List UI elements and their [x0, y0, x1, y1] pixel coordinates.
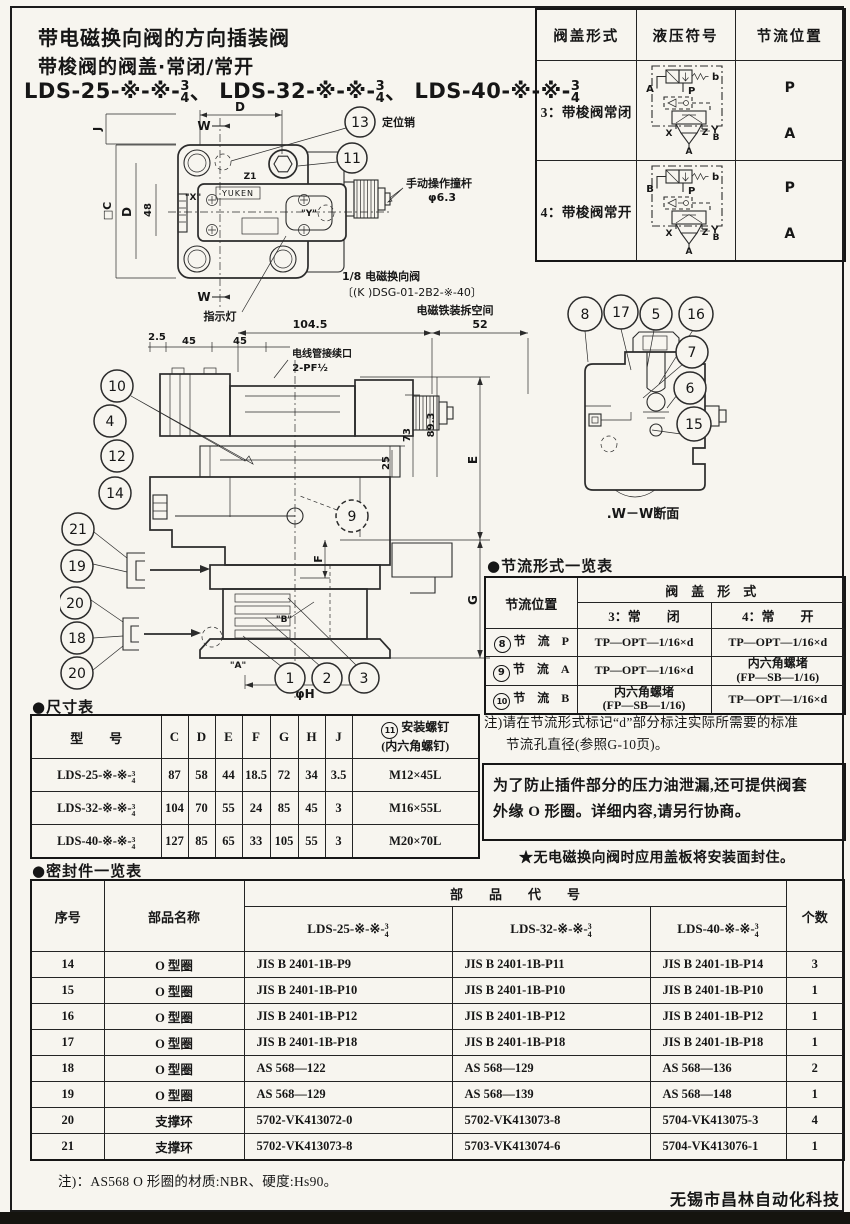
- dims-header-j: J: [325, 715, 352, 759]
- seal-header-qty: 个数: [786, 880, 844, 952]
- val-c: 127: [161, 825, 188, 859]
- plan-view-drawing: YUKEN "X" "Y" Z1 D J □C D: [90, 100, 540, 328]
- val-f: 18.5: [242, 759, 270, 792]
- seal-no: 15: [31, 978, 104, 1004]
- callout-14: 14: [106, 486, 124, 502]
- pin-label: 定位销: [382, 115, 415, 129]
- callout-3: 3: [360, 671, 369, 687]
- dims-row-lds40: LDS-40-※-※-34 127 85 65 33 105 55 3 M20×…: [31, 825, 479, 859]
- solenoid-space-label: 电磁铁装拆空间: [417, 303, 494, 317]
- dim-89-3: 89.3: [426, 413, 437, 438]
- throttle-row-a: 9节 流 A TP—OPT—1/16×d 内六角螺堵(FP—SB—1/16): [485, 657, 845, 686]
- val-d: 70: [188, 792, 215, 825]
- dims-header-e: E: [215, 715, 242, 759]
- seal-no: 14: [31, 952, 104, 978]
- throttle-row-p-label: 节 流 P: [514, 634, 569, 648]
- val-h: 45: [298, 792, 325, 825]
- callout-20: 20: [66, 596, 84, 612]
- seal-header-model-25: LDS-25-※-※-34: [244, 907, 452, 952]
- seal-table-label: ●密封件一览表: [32, 860, 142, 881]
- throttle-note-line1: 注)请在节流形式标记“d”部分标注实际所需要的标准: [484, 711, 844, 731]
- cell-line2: (FP—SB—1/16): [712, 671, 845, 685]
- throttle-row-p: 8节 流 P TP—OPT—1/16×d TP—OPT—1/16×d: [485, 629, 845, 657]
- seal-name: 支撑环: [104, 1108, 244, 1134]
- star-note: ★无电磁换向阀时应用盖板将安装面封住。: [519, 847, 795, 867]
- seal-name: O 型圈: [104, 1004, 244, 1030]
- val-j: 3: [325, 792, 352, 825]
- cover-type-table: 阀盖形式 液压符号 节流位置 3：带梭阀常闭 b A P: [535, 8, 846, 262]
- seal-name: O 型圈: [104, 1082, 244, 1108]
- pos-a: A: [736, 226, 845, 242]
- seal-code-32: 5702-VK413073-8: [452, 1108, 650, 1134]
- seal-code-25: AS 568—122: [244, 1056, 452, 1082]
- throttle-row-b-label: 节 流 B: [513, 691, 569, 705]
- seal-qty: 4: [786, 1108, 844, 1134]
- val-e: 55: [215, 792, 242, 825]
- callout-5: 5: [652, 307, 661, 323]
- cover-table-row-nc: 3：带梭阀常闭 b A P: [536, 61, 845, 161]
- oring-option-line2: 外缘 O 形圈。详细内容,请另行协商。: [493, 799, 835, 825]
- hydraulic-symbol-nc: b A P X Z Y B: [638, 61, 734, 155]
- seal-row: 17 O 型圈 JIS B 2401-1B-P18 JIS B 2401-1B-…: [31, 1030, 844, 1056]
- val-h: 55: [298, 825, 325, 859]
- val-f: 24: [242, 792, 270, 825]
- throttle-note-line2: 节流孔直径(参照G-10页)。: [506, 733, 846, 753]
- sym-port-z-label: Z: [701, 228, 708, 238]
- cover-type-no-label: 4：带梭阀常开: [537, 201, 636, 221]
- model-cell: LDS-25-※-※-: [57, 767, 131, 783]
- val-c: 104: [161, 792, 188, 825]
- val-e: 44: [215, 759, 242, 792]
- page-bottom-bar: [0, 1212, 850, 1224]
- seal-no: 16: [31, 1004, 104, 1030]
- cover-type-nc-label: 3：带梭阀常闭: [537, 101, 636, 121]
- sym-port-b2-label: B: [712, 133, 719, 143]
- rod-label: 手动操作撞杆: [406, 176, 472, 190]
- dims-header-c: C: [161, 715, 188, 759]
- seal-header-no: 序号: [31, 880, 104, 952]
- ww-callouts: 8 17 5 16 7 6 15: [568, 295, 713, 441]
- val-h: 34: [298, 759, 325, 792]
- dims-row-lds32: LDS-32-※-※-34 104 70 55 24 85 45 3 M16×5…: [31, 792, 479, 825]
- seal-code-32: 5703-VK413074-6: [452, 1134, 650, 1161]
- port-z-label: Z1: [244, 172, 257, 182]
- seal-name: O 型圈: [104, 978, 244, 1004]
- dims-header-g: G: [270, 715, 298, 759]
- callout-2: 2: [323, 671, 332, 687]
- val-g: 72: [270, 759, 298, 792]
- callout-13: 13: [351, 115, 369, 131]
- pos-a: A: [736, 126, 845, 142]
- section-clips: [91, 532, 210, 670]
- seal-code-40: JIS B 2401-1B-P12: [650, 1004, 786, 1030]
- seal-code-32: JIS B 2401-1B-P12: [452, 1004, 650, 1030]
- section-cover-block: [150, 477, 452, 593]
- seal-name: O 型圈: [104, 1056, 244, 1082]
- seal-row: 19 O 型圈 AS 568—129 AS 568—139 AS 568—148…: [31, 1082, 844, 1108]
- sym-port-p-label: P: [688, 86, 695, 97]
- seal-code-25: JIS B 2401-1B-P12: [244, 1004, 452, 1030]
- seal-code-25: JIS B 2401-1B-P18: [244, 1030, 452, 1056]
- section-valve-assembly: [160, 368, 453, 477]
- dims-header-f: F: [242, 715, 270, 759]
- screw-header-line2: (内六角螺钉): [353, 739, 479, 754]
- throttle-row-a-label: 节 流 A: [513, 662, 570, 676]
- dim-g: G: [466, 595, 480, 605]
- den: 4: [588, 931, 592, 939]
- callout-16: 16: [687, 307, 705, 323]
- dim-52: 52: [472, 318, 487, 331]
- port-b-label: "B": [276, 615, 292, 625]
- callout-20b: 20: [68, 666, 86, 682]
- catalog-page: 带电磁换向阀的方向插装阀 带梭阀的阀盖·常闭/常开 LDS-25-※-※- 34…: [0, 0, 850, 1224]
- section-top-dimensions: 电磁铁装拆空间 104.5 52 2.5 45 45 电线管接续口 2-PF½: [148, 303, 528, 394]
- cover-table-row-no: 4：带梭阀常开 b B P: [536, 161, 845, 262]
- val-d: 85: [188, 825, 215, 859]
- callout-9: 9: [348, 509, 357, 525]
- seal-header-model-32: LDS-32-※-※-34: [452, 907, 650, 952]
- cover-table-header-symbol: 液压符号: [636, 9, 735, 61]
- seal-code-40: AS 568—148: [650, 1082, 786, 1108]
- dim-d-left: D: [120, 207, 134, 217]
- callout-4: 4: [106, 414, 115, 430]
- val-d: 58: [188, 759, 215, 792]
- val-j: 3: [325, 825, 352, 859]
- seal-code-25: JIS B 2401-1B-P9: [244, 952, 452, 978]
- seal-name: O 型圈: [104, 952, 244, 978]
- den: 4: [132, 810, 136, 817]
- conduit-size-label: 2-PF½: [292, 363, 328, 374]
- callout-10: 10: [108, 379, 126, 395]
- circled-9: 9: [493, 665, 510, 682]
- cell: TP—OPT—1/16×d: [711, 685, 845, 714]
- callout-6: 6: [686, 381, 695, 397]
- port-x-label: "X": [185, 193, 201, 203]
- sym-port-b-label: b: [712, 72, 719, 83]
- dims-table: 型 号 C D E F G H J 11安装螺钉 (内六角螺钉) LDS-25-…: [30, 714, 480, 859]
- port-y-label: "Y": [301, 209, 317, 219]
- seal-code-32: AS 568—139: [452, 1082, 650, 1108]
- cover-table-header-pos: 节流位置: [735, 9, 845, 61]
- val-screw: M12×45L: [352, 759, 479, 792]
- callout-12: 12: [108, 449, 126, 465]
- sym-port-left-label: B: [646, 184, 654, 195]
- dim-j: J: [91, 127, 104, 132]
- seal-code-40: 5704-VK413076-1: [650, 1134, 786, 1161]
- seal-qty: 1: [786, 1004, 844, 1030]
- dim-104-5: 104.5: [293, 318, 328, 331]
- seal-row: 20 支撑环 5702-VK413072-0 5702-VK413073-8 5…: [31, 1108, 844, 1134]
- val-g: 105: [270, 825, 298, 859]
- throttle-table-label: ●节流形式一览表: [487, 555, 613, 576]
- throttle-pos-no: P A: [736, 165, 845, 257]
- sym-port-left-label: A: [646, 84, 654, 95]
- m: LDS-32-※-※-: [510, 921, 587, 937]
- seal-row: 14 O 型圈 JIS B 2401-1B-P9 JIS B 2401-1B-P…: [31, 952, 844, 978]
- callout-1: 1: [286, 671, 295, 687]
- cell: TP—OPT—1/16×d: [577, 657, 711, 686]
- seal-code-40: AS 568—136: [650, 1056, 786, 1082]
- dim-25-right: 25: [381, 456, 392, 470]
- dim-73: 73: [402, 428, 413, 442]
- page-subtitle: 带梭阀的阀盖·常闭/常开: [38, 52, 254, 79]
- dim-48: 48: [143, 203, 154, 217]
- oring-option-line1: 为了防止插件部分的压力油泄漏,还可提供阀套: [493, 773, 835, 799]
- callout-15: 15: [685, 417, 703, 433]
- seal-no: 18: [31, 1056, 104, 1082]
- dims-header-screw: 11安装螺钉 (内六角螺钉): [352, 715, 479, 759]
- seal-code-32: AS 568—129: [452, 1056, 650, 1082]
- throttle-sub-nc: 3：常 闭: [577, 603, 711, 629]
- solenoid-valve-code: 〔(K )DSG-01-2B2-※-40〕: [342, 286, 482, 299]
- circled-8: 8: [494, 636, 511, 653]
- val-screw: M16×55L: [352, 792, 479, 825]
- seal-code-32: JIS B 2401-1B-P18: [452, 1030, 650, 1056]
- seal-header-model-40: LDS-40-※-※-34: [650, 907, 786, 952]
- den: 4: [385, 931, 389, 939]
- seal-no: 21: [31, 1134, 104, 1161]
- val-c: 87: [161, 759, 188, 792]
- cover-table-header-type: 阀盖形式: [536, 9, 636, 61]
- solenoid-valve-label: 1/8 电磁换向阀: [342, 269, 420, 283]
- ww-caption: .W－W断面: [607, 506, 680, 522]
- seal-no: 17: [31, 1030, 104, 1056]
- seal-no: 20: [31, 1108, 104, 1134]
- throttle-pos-nc: P A: [736, 65, 845, 157]
- sym-port-z-label: Z: [701, 128, 708, 138]
- sym-port-a-label: A: [685, 247, 692, 255]
- den: 4: [132, 843, 136, 850]
- sym-port-p-label: P: [688, 186, 695, 197]
- val-e: 65: [215, 825, 242, 859]
- sym-port-b2-label: B: [712, 233, 719, 243]
- dims-header-model: 型 号: [31, 715, 161, 759]
- seal-qty: 2: [786, 1056, 844, 1082]
- seal-header-name: 部品名称: [104, 880, 244, 952]
- seal-code-40: JIS B 2401-1B-P10: [650, 978, 786, 1004]
- section-view-drawing: 电磁铁装拆空间 104.5 52 2.5 45 45 电线管接续口 2-PF½: [60, 300, 540, 700]
- throttle-table: 节流位置 阀 盖 形 式 3：常 闭 4：常 开 8节 流 P TP—OPT—1…: [484, 576, 846, 715]
- circled-11: 11: [381, 722, 398, 739]
- seal-code-32: JIS B 2401-1B-P11: [452, 952, 650, 978]
- cell: 内六角螺堵(FP—SB—1/16): [711, 657, 845, 686]
- seal-code-25: AS 568—129: [244, 1082, 452, 1108]
- seal-qty: 1: [786, 1134, 844, 1161]
- oring-option-note: 为了防止插件部分的压力油泄漏,还可提供阀套 外缘 O 形圈。详细内容,请另行协商…: [482, 763, 846, 841]
- m: LDS-25-※-※-: [307, 921, 384, 937]
- dims-row-lds25: LDS-25-※-※-34 87 58 44 18.5 72 34 3.5 M1…: [31, 759, 479, 792]
- dim-e: E: [466, 456, 480, 464]
- callout-7: 7: [688, 345, 697, 361]
- seal-code-40: JIS B 2401-1B-P14: [650, 952, 786, 978]
- seal-qty: 1: [786, 1082, 844, 1108]
- seal-row: 15 O 型圈 JIS B 2401-1B-P10 JIS B 2401-1B-…: [31, 978, 844, 1004]
- ww-section-drawing: 8 17 5 16 7 6 15 .W－W断面: [555, 278, 847, 523]
- val-j: 3.5: [325, 759, 352, 792]
- seal-code-32: JIS B 2401-1B-P10: [452, 978, 650, 1004]
- seal-table: 序号 部品名称 部 品 代 号 个数 LDS-25-※-※-34 LDS-32-…: [30, 879, 845, 1161]
- val-g: 85: [270, 792, 298, 825]
- pos-p: P: [736, 80, 845, 96]
- rod-dia-label: φ6.3: [428, 191, 456, 204]
- throttle-pos-header: 节流位置: [485, 577, 577, 629]
- dim-45a: 45: [182, 336, 196, 347]
- dim-2-5: 2.5: [148, 332, 166, 343]
- sym-port-a-label: A: [685, 147, 692, 155]
- seal-header-code: 部 品 代 号: [244, 880, 786, 907]
- seal-code-25: 5702-VK413072-0: [244, 1108, 452, 1134]
- throttle-sub-no: 4：常 开: [711, 603, 845, 629]
- callout-19: 19: [68, 559, 86, 575]
- cell: TP—OPT—1/16×d: [577, 629, 711, 657]
- circled-10: 10: [493, 693, 510, 710]
- dims-header-h: H: [298, 715, 325, 759]
- seal-code-40: 5704-VK413075-3: [650, 1108, 786, 1134]
- den: 4: [755, 931, 759, 939]
- dim-f: F: [312, 555, 325, 563]
- seal-no: 19: [31, 1082, 104, 1108]
- den: 4: [132, 777, 136, 784]
- page-title: 带电磁换向阀的方向插装阀: [38, 22, 290, 51]
- port-a-label: "A": [230, 661, 246, 671]
- dim-c: □C: [101, 202, 114, 220]
- seal-qty: 1: [786, 978, 844, 1004]
- throttle-row-b: 10节 流 B 内六角螺堵(FP—SB—1/16) TP—OPT—1/16×d: [485, 685, 845, 714]
- hydraulic-symbol-no: b B P X Z Y B: [638, 161, 734, 255]
- sym-port-x-label: X: [665, 229, 672, 239]
- throttle-cover-header: 阀 盖 形 式: [577, 577, 845, 603]
- seal-code-25: 5702-VK413073-8: [244, 1134, 452, 1161]
- seal-qty: 3: [786, 952, 844, 978]
- seal-code-40: JIS B 2401-1B-P18: [650, 1030, 786, 1056]
- seal-name: O 型圈: [104, 1030, 244, 1056]
- dims-header-d: D: [188, 715, 215, 759]
- cell: TP—OPT—1/16×d: [711, 629, 845, 657]
- cell-line1: 内六角螺堵: [712, 657, 845, 671]
- dim-d-top: D: [235, 100, 245, 114]
- seal-code-25: JIS B 2401-1B-P10: [244, 978, 452, 1004]
- w-top-label: W: [197, 119, 210, 133]
- seal-row: 21 支撑环 5702-VK413073-8 5703-VK413074-6 5…: [31, 1134, 844, 1161]
- callout-18: 18: [68, 631, 86, 647]
- pos-p: P: [736, 180, 845, 196]
- val-screw: M20×70L: [352, 825, 479, 859]
- cell: 内六角螺堵(FP—SB—1/16): [577, 685, 711, 714]
- callout-11: 11: [343, 151, 361, 167]
- callout-17: 17: [612, 305, 630, 321]
- callout-8: 8: [581, 307, 590, 323]
- sym-port-x-label: X: [665, 129, 672, 139]
- dim-45b: 45: [233, 336, 247, 347]
- model-cell: LDS-40-※-※-: [57, 833, 131, 849]
- seal-row: 16 O 型圈 JIS B 2401-1B-P12 JIS B 2401-1B-…: [31, 1004, 844, 1030]
- seal-qty: 1: [786, 1030, 844, 1056]
- val-f: 33: [242, 825, 270, 859]
- m: LDS-40-※-※-: [677, 921, 754, 937]
- brand-label: YUKEN: [221, 189, 254, 198]
- seal-material-note: 注)：AS568 O 形圈的材质:NBR、硬度:Hs90。: [58, 1170, 337, 1190]
- seal-row: 18 O 型圈 AS 568—122 AS 568—129 AS 568—136…: [31, 1056, 844, 1082]
- screw-header-line1: 安装螺钉: [401, 720, 449, 734]
- callout-21: 21: [69, 522, 87, 538]
- cell-line1: 内六角螺堵: [578, 686, 711, 700]
- company-footer: 无锡市昌林自动化科技: [500, 1186, 840, 1210]
- conduit-label: 电线管接续口: [292, 347, 352, 360]
- model-cell: LDS-32-※-※-: [57, 800, 131, 816]
- sym-port-b-label: b: [712, 172, 719, 183]
- seal-name: 支撑环: [104, 1134, 244, 1161]
